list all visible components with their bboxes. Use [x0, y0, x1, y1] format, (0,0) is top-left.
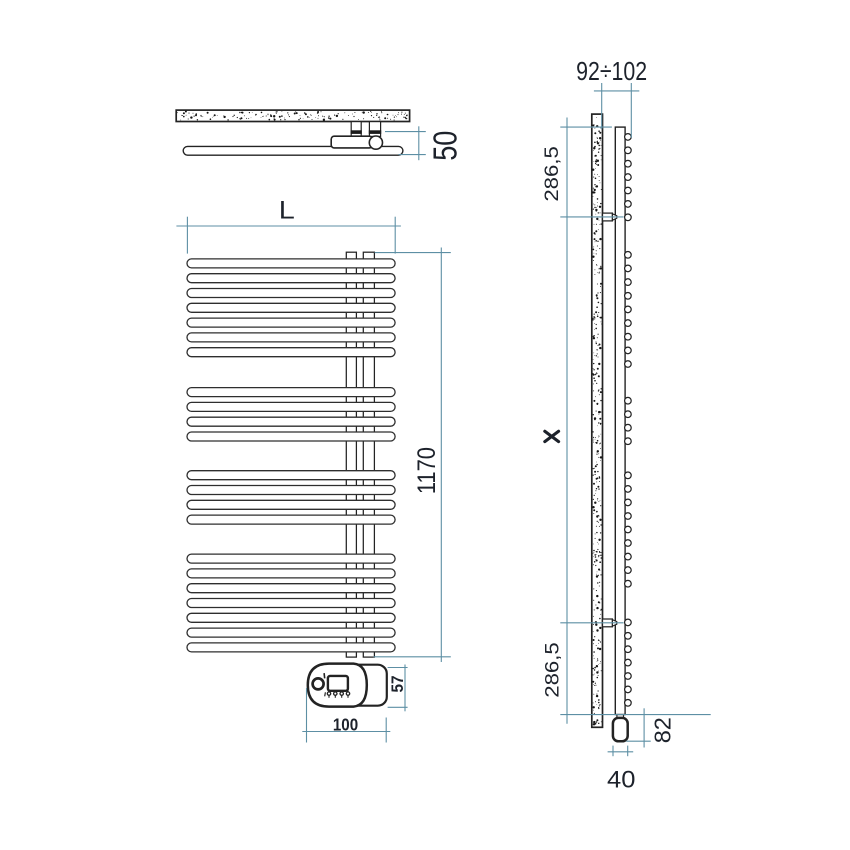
svg-text:1170: 1170	[413, 447, 441, 494]
svg-text:82: 82	[650, 717, 676, 743]
svg-text:50: 50	[427, 131, 464, 161]
svg-text:57: 57	[390, 675, 408, 692]
svg-text:100: 100	[333, 715, 358, 734]
svg-text:40: 40	[607, 767, 635, 793]
svg-text:286,5: 286,5	[542, 642, 563, 698]
svg-text:92÷102: 92÷102	[576, 57, 647, 87]
svg-text:L: L	[279, 195, 295, 224]
svg-text:286,5: 286,5	[541, 146, 562, 202]
